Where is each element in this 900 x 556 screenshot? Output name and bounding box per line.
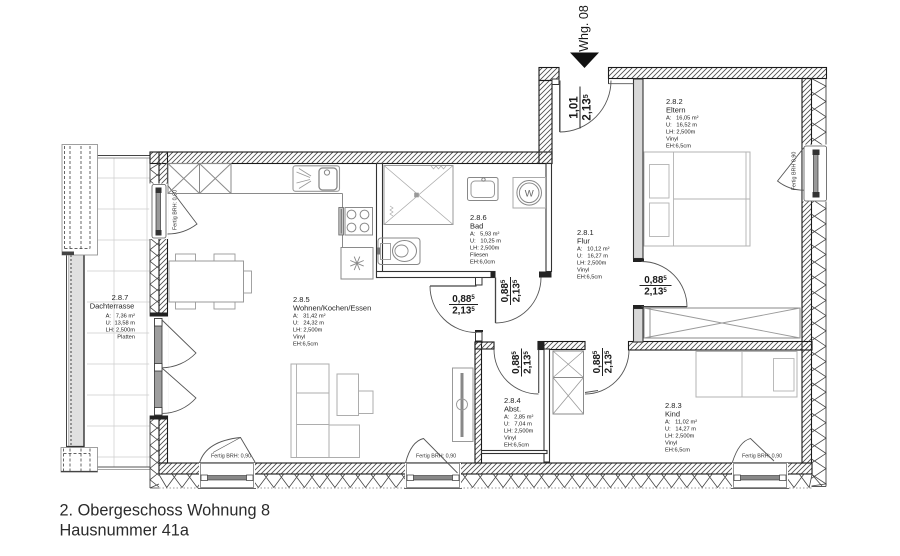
svg-text:EH:6,0cm: EH:6,0cm — [470, 260, 495, 266]
svg-text:A: 10,12 m²: A: 10,12 m² — [577, 247, 610, 253]
svg-text:U: 16,27 m: U: 16,27 m — [577, 254, 608, 260]
svg-text:LH: 2,500m: LH: 2,500m — [665, 434, 695, 440]
svg-text:EH:6,5cm: EH:6,5cm — [577, 275, 602, 281]
svg-text:LH: 2,500m: LH: 2,500m — [470, 246, 500, 252]
svg-text:Vinyl: Vinyl — [293, 335, 305, 341]
svg-text:Whg. 08: Whg. 08 — [577, 5, 591, 52]
svg-text:Vinyl: Vinyl — [577, 268, 589, 274]
svg-text:A: 11,02 m²: A: 11,02 m² — [665, 420, 697, 426]
svg-text:A: 31,42 m²: A: 31,42 m² — [293, 314, 326, 320]
svg-text:Kind: Kind — [665, 410, 680, 419]
svg-text:LH: 2,500m: LH: 2,500m — [106, 328, 136, 334]
svg-text:U: 10,25 m: U: 10,25 m — [470, 239, 501, 245]
svg-text:LH: 2,500m: LH: 2,500m — [666, 130, 696, 136]
svg-text:Wohnen/Kochen/Essen: Wohnen/Kochen/Essen — [293, 304, 371, 313]
svg-text:Dachterrasse: Dachterrasse — [90, 302, 135, 311]
svg-text:LH: 2,500m: LH: 2,500m — [504, 429, 534, 435]
svg-text:2. Obergeschoss Wohnung 8: 2. Obergeschoss Wohnung 8 — [60, 502, 271, 520]
svg-text:W: W — [525, 188, 534, 199]
svg-text:A: 7,36 m²: A: 7,36 m² — [106, 314, 136, 320]
svg-text:Fliesen: Fliesen — [470, 253, 488, 259]
svg-text:Flur: Flur — [577, 237, 590, 246]
svg-text:EH:6,5cm: EH:6,5cm — [293, 342, 318, 348]
svg-text:Fertig BRH: 0,90: Fertig BRH: 0,90 — [211, 454, 251, 460]
svg-text:Fertig BRH: 0,90: Fertig BRH: 0,90 — [173, 190, 179, 230]
svg-text:Fertig BRH: 0,90: Fertig BRH: 0,90 — [416, 454, 456, 460]
svg-text:U: 16,52 m: U: 16,52 m — [666, 123, 697, 129]
svg-text:Bad: Bad — [470, 222, 483, 231]
svg-text:U: 13,58 m: U: 13,58 m — [106, 321, 136, 327]
svg-text:Fertig BRH 0,90: Fertig BRH 0,90 — [792, 152, 798, 191]
svg-text:Platten: Platten — [117, 335, 135, 341]
svg-text:LH: 2,500m: LH: 2,500m — [293, 328, 323, 334]
svg-text:A: 16,05 m²: A: 16,05 m² — [666, 116, 699, 122]
svg-text:EH:6,5cm: EH:6,5cm — [504, 443, 529, 449]
svg-text:LH: 2,500m: LH: 2,500m — [577, 261, 607, 267]
svg-text:Hausnummer 41a: Hausnummer 41a — [60, 522, 190, 540]
svg-text:Vinyl: Vinyl — [504, 436, 516, 442]
svg-text:Vinyl: Vinyl — [665, 441, 677, 447]
svg-text:Vinyl: Vinyl — [666, 137, 678, 143]
svg-text:1,01: 1,01 — [569, 96, 581, 119]
svg-text:U: 7,04 m: U: 7,04 m — [504, 422, 532, 428]
svg-text:EH:6,5cm: EH:6,5cm — [665, 448, 690, 454]
svg-text:Eltern: Eltern — [666, 106, 686, 115]
svg-text:Fertig BRH: 0,90: Fertig BRH: 0,90 — [742, 454, 782, 460]
svg-text:A: 5,93 m²: A: 5,93 m² — [470, 232, 500, 238]
svg-text:A: 2,85 m²: A: 2,85 m² — [504, 415, 534, 421]
svg-text:U: 24,32 m: U: 24,32 m — [293, 321, 324, 327]
svg-text:EH:6,5cm: EH:6,5cm — [666, 144, 691, 150]
svg-text:Abst.: Abst. — [504, 405, 521, 414]
svg-text:U: 14,27 m: U: 14,27 m — [665, 427, 696, 433]
